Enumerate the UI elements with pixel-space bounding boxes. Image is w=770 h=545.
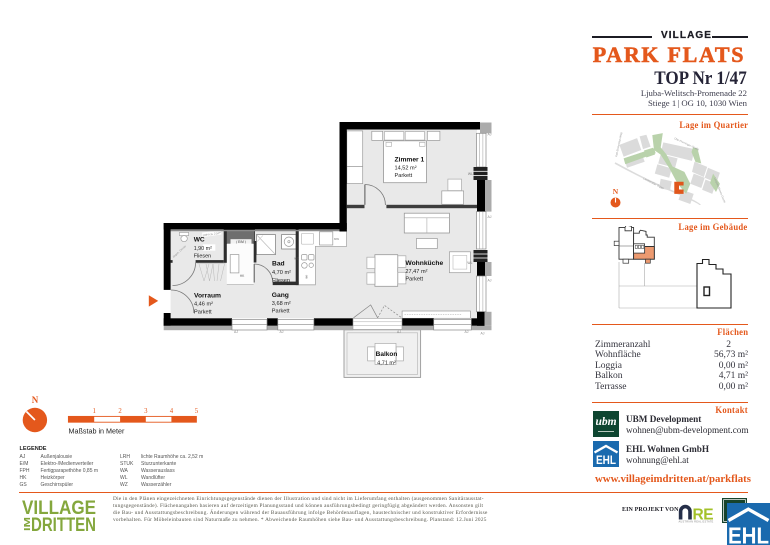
svg-text:Bad: Bad: [272, 261, 285, 268]
svg-text:Balkon: Balkon: [376, 351, 398, 358]
svg-text:AJ: AJ: [234, 330, 238, 334]
svg-text:AJ: AJ: [481, 332, 485, 336]
svg-text:MW: MW: [334, 237, 339, 241]
svg-text:AJ: AJ: [280, 330, 284, 334]
svg-text:HK: HK: [240, 274, 245, 278]
svg-text:Zimmer 1: Zimmer 1: [395, 156, 425, 163]
svg-text:WL: WL: [468, 172, 473, 176]
svg-text:AJ: AJ: [488, 215, 492, 219]
svg-text:WL: WL: [467, 261, 472, 265]
svg-text:27,47 m²: 27,47 m²: [405, 269, 427, 275]
svg-text:Gang: Gang: [272, 292, 289, 299]
svg-text:WZ: WZ: [294, 257, 299, 261]
svg-text:( E/M ): ( E/M ): [236, 240, 246, 244]
svg-text:WC: WC: [194, 236, 205, 243]
svg-text:Parkett: Parkett: [405, 276, 423, 282]
svg-text:AJ: AJ: [465, 330, 469, 334]
svg-text:Wohnküche: Wohnküche: [405, 260, 443, 267]
svg-text:14,52 m²: 14,52 m²: [395, 165, 417, 171]
svg-text:Fliesen: Fliesen: [194, 253, 211, 259]
svg-text:AJ: AJ: [488, 133, 492, 137]
svg-text:4,70 m²: 4,70 m²: [272, 270, 291, 276]
svg-text:3,68 m²: 3,68 m²: [272, 301, 291, 307]
svg-text:AJ: AJ: [488, 278, 492, 282]
svg-text:Parkett: Parkett: [194, 310, 212, 316]
svg-text:Parkett: Parkett: [272, 308, 290, 314]
svg-text:Parkett: Parkett: [395, 173, 413, 179]
svg-text:4,46 m²: 4,46 m²: [194, 302, 213, 308]
svg-text:Vorraum: Vorraum: [194, 293, 221, 300]
svg-text:AJ: AJ: [397, 330, 401, 334]
svg-text:1,90 m²: 1,90 m²: [194, 246, 212, 252]
svg-text:4,71 m²: 4,71 m²: [377, 361, 396, 367]
